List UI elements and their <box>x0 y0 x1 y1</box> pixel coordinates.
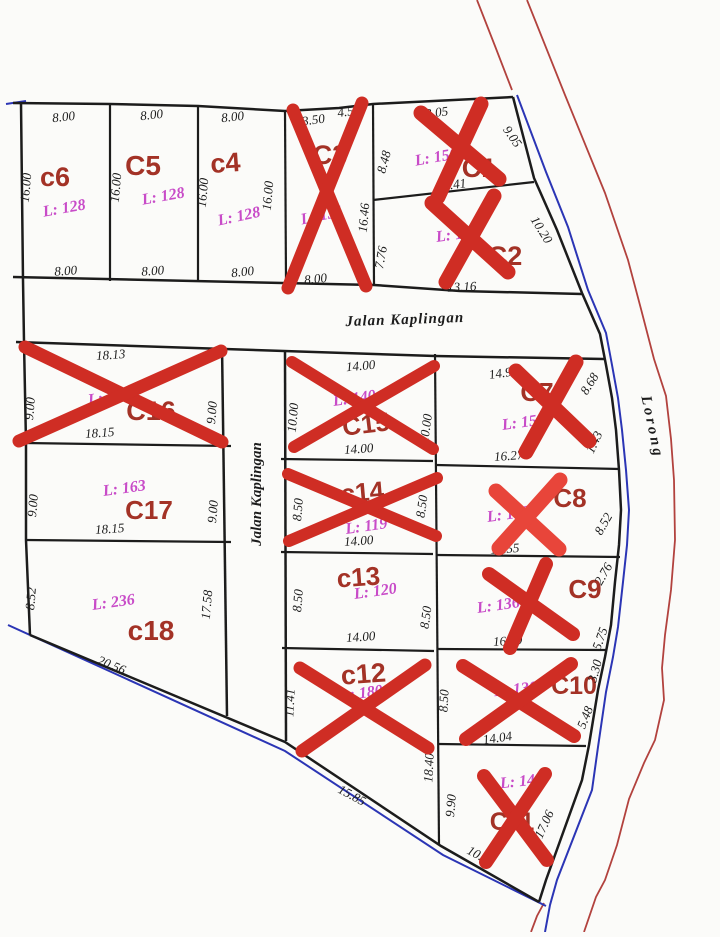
svg-text:c4: c4 <box>209 147 241 179</box>
svg-text:8.52: 8.52 <box>22 586 39 610</box>
svg-text:18.13: 18.13 <box>96 346 127 363</box>
svg-text:18.15: 18.15 <box>95 520 126 537</box>
svg-text:8.00: 8.00 <box>51 108 76 125</box>
svg-text:18.40: 18.40 <box>420 752 437 782</box>
svg-text:9.90: 9.90 <box>442 793 459 817</box>
svg-text:8.00: 8.00 <box>230 263 255 280</box>
svg-text:17.58: 17.58 <box>198 589 216 620</box>
svg-text:10.00: 10.00 <box>284 402 302 433</box>
svg-text:16.46: 16.46 <box>355 202 373 233</box>
svg-text:8.00: 8.00 <box>139 106 164 123</box>
svg-text:c6: c6 <box>40 162 70 192</box>
svg-text:9.00: 9.00 <box>204 499 221 523</box>
svg-text:16.00: 16.00 <box>107 172 125 203</box>
svg-text:11.41: 11.41 <box>281 688 297 717</box>
svg-text:C17: C17 <box>125 495 173 525</box>
svg-text:8.00: 8.00 <box>141 262 165 279</box>
svg-text:C5: C5 <box>125 150 161 181</box>
svg-text:8.00: 8.00 <box>220 108 245 125</box>
svg-text:14.00: 14.00 <box>344 532 375 549</box>
svg-text:9.00: 9.00 <box>24 493 41 517</box>
svg-text:8.50: 8.50 <box>435 689 451 713</box>
svg-text:9.00: 9.00 <box>21 396 38 420</box>
svg-text:14.00: 14.00 <box>345 357 376 375</box>
svg-text:14.00: 14.00 <box>344 440 375 457</box>
svg-text:18.15: 18.15 <box>85 424 116 441</box>
svg-text:8.50: 8.50 <box>413 494 431 519</box>
svg-text:8.00: 8.00 <box>54 262 78 279</box>
svg-text:9.00: 9.00 <box>203 400 220 424</box>
svg-text:16.00: 16.00 <box>259 180 277 211</box>
svg-text:8.50: 8.50 <box>417 605 435 630</box>
svg-text:Jalan Kaplingan: Jalan Kaplingan <box>249 442 265 547</box>
svg-text:8.00: 8.00 <box>303 270 328 287</box>
svg-text:14.00: 14.00 <box>346 628 377 645</box>
svg-text:16.00: 16.00 <box>17 172 35 203</box>
svg-text:8.50: 8.50 <box>289 497 306 521</box>
svg-text:16.00: 16.00 <box>194 177 212 208</box>
svg-text:c18: c18 <box>128 615 175 646</box>
svg-text:8.50: 8.50 <box>289 588 306 612</box>
